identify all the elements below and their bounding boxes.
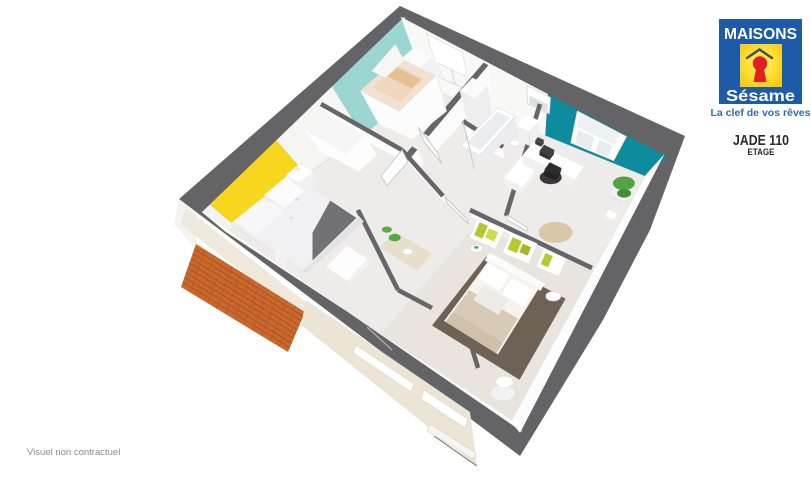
svg-text:Visuel non contractuel: Visuel non contractuel (27, 447, 120, 458)
svg-text:ETAGE: ETAGE (748, 147, 775, 157)
svg-text:La clef de vos rêves: La clef de vos rêves (711, 108, 811, 119)
svg-text:Sésame: Sésame (726, 88, 795, 105)
svg-text:MAISONS: MAISONS (724, 26, 797, 43)
